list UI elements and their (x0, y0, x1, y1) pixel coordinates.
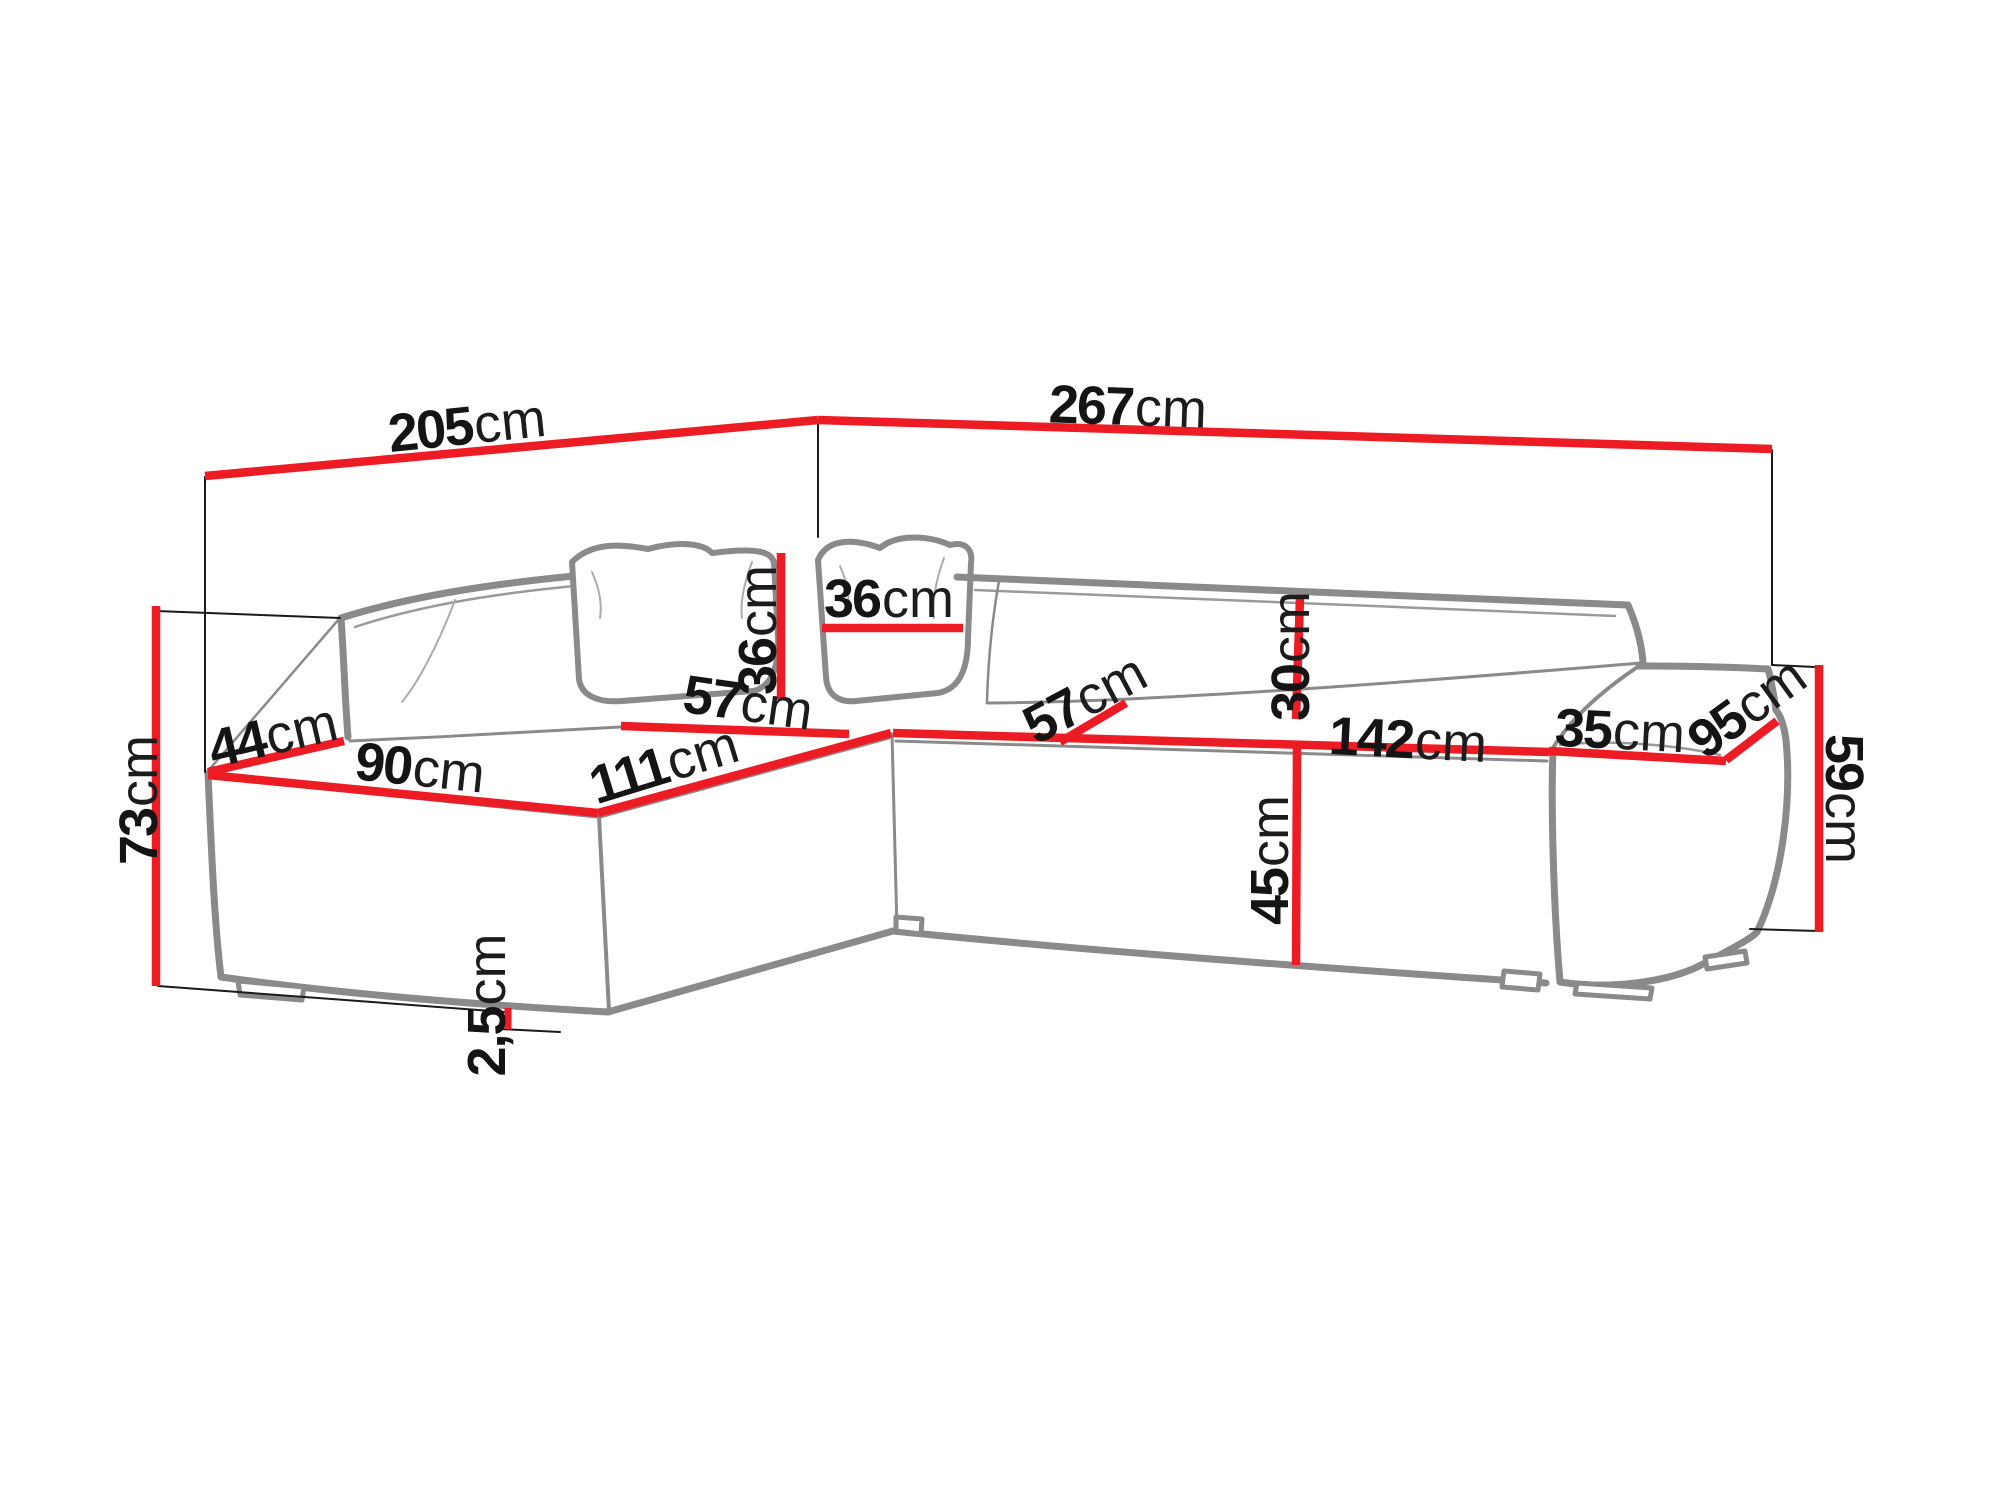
dim-line-267 (818, 420, 1772, 449)
dim-line-35 (1549, 751, 1726, 761)
dim-line-90 (208, 775, 598, 813)
helper-line-right-horizontal (1772, 665, 1815, 667)
helper-line-left-horizontal (156, 611, 340, 618)
dim-line-30 (1296, 597, 1300, 719)
sofa-outline-drawing (0, 0, 2000, 1500)
dim-line-111 (598, 733, 891, 813)
sofa-legs (238, 917, 1747, 1000)
dim-line-205 (205, 420, 818, 476)
dim-line-95 (1726, 721, 1777, 760)
dimension-diagram: 205cm 267cm 73cm 44cm 90cm 111cm 57cm 36… (0, 0, 2000, 1500)
dim-line-57-left (621, 726, 849, 734)
helper-line-leg-bracket (500, 1029, 560, 1032)
dim-line-45 (1296, 748, 1297, 965)
sofa-outline (208, 538, 1788, 1013)
